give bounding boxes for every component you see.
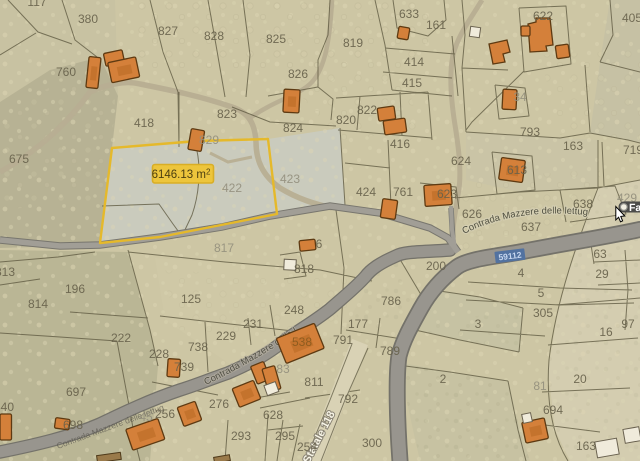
svg-text:125: 125	[181, 292, 201, 306]
svg-text:819: 819	[343, 36, 363, 50]
svg-text:16: 16	[599, 325, 613, 339]
svg-text:422: 422	[222, 181, 242, 195]
svg-text:6: 6	[316, 237, 323, 251]
svg-text:5: 5	[538, 286, 545, 300]
svg-text:789: 789	[380, 344, 400, 358]
svg-text:820: 820	[336, 113, 356, 127]
svg-text:228: 228	[149, 347, 169, 361]
svg-text:818: 818	[294, 262, 314, 276]
svg-text:825: 825	[266, 32, 286, 46]
svg-text:814: 814	[28, 297, 48, 311]
svg-text:697: 697	[66, 385, 86, 399]
svg-text:817: 817	[214, 241, 234, 255]
svg-text:633: 633	[399, 7, 419, 21]
svg-text:418: 418	[134, 116, 154, 130]
svg-text:29: 29	[595, 267, 609, 281]
svg-text:380: 380	[78, 12, 98, 26]
svg-text:229: 229	[216, 329, 236, 343]
svg-text:163: 163	[576, 439, 596, 453]
svg-text:231: 231	[243, 317, 263, 331]
svg-text:623: 623	[437, 187, 457, 201]
svg-text:637: 637	[521, 220, 541, 234]
svg-text:81: 81	[533, 379, 547, 393]
svg-text:248: 248	[284, 303, 304, 317]
svg-text:538: 538	[292, 335, 312, 349]
svg-text:811: 811	[304, 375, 323, 389]
svg-text:840: 840	[0, 400, 14, 414]
svg-text:638: 638	[573, 197, 593, 211]
svg-text:626: 626	[462, 207, 482, 221]
svg-text:786: 786	[381, 294, 401, 308]
svg-text:200: 200	[426, 259, 446, 273]
svg-text:161: 161	[426, 18, 446, 32]
svg-text:97: 97	[621, 317, 635, 331]
svg-text:295: 295	[275, 429, 295, 443]
svg-text:3: 3	[475, 317, 482, 331]
svg-text:761: 761	[393, 185, 413, 199]
svg-text:826: 826	[288, 67, 308, 81]
svg-text:791: 791	[333, 333, 353, 347]
svg-text:177: 177	[348, 317, 368, 331]
svg-text:827: 827	[158, 24, 178, 38]
svg-text:276: 276	[209, 397, 229, 411]
svg-text:423: 423	[280, 172, 300, 186]
svg-text:416: 416	[390, 137, 410, 151]
svg-text:2: 2	[440, 372, 447, 386]
svg-text:293: 293	[231, 429, 251, 443]
svg-text:828: 828	[204, 29, 224, 43]
svg-text:45: 45	[139, 410, 153, 424]
svg-text:254: 254	[297, 440, 317, 454]
svg-text:675: 675	[9, 152, 29, 166]
svg-text:163: 163	[563, 139, 583, 153]
svg-text:829: 829	[199, 133, 219, 147]
svg-text:622: 622	[533, 9, 553, 23]
svg-text:300: 300	[362, 436, 382, 450]
svg-text:34: 34	[513, 90, 527, 104]
svg-text:424: 424	[356, 185, 376, 199]
svg-text:4: 4	[518, 266, 525, 280]
svg-text:117: 117	[27, 0, 46, 9]
svg-text:824: 824	[283, 121, 303, 135]
svg-text:792: 792	[338, 392, 358, 406]
svg-text:20: 20	[573, 372, 587, 386]
svg-text:613: 613	[507, 163, 527, 177]
svg-text:83: 83	[276, 362, 290, 376]
svg-text:196: 196	[65, 282, 85, 296]
svg-text:405: 405	[622, 11, 640, 25]
svg-text:624: 624	[451, 154, 471, 168]
svg-text:415: 415	[402, 76, 422, 90]
svg-text:760: 760	[56, 65, 76, 79]
svg-text:813: 813	[0, 265, 15, 279]
svg-text:823: 823	[217, 107, 237, 121]
svg-text:694: 694	[543, 403, 563, 417]
svg-text:63: 63	[593, 247, 607, 261]
svg-text:Fa: Fa	[629, 202, 640, 214]
svg-text:698: 698	[63, 418, 83, 432]
svg-text:738: 738	[188, 340, 208, 354]
svg-text:414: 414	[404, 55, 424, 69]
svg-text:6146.13 m2: 6146.13 m2	[152, 168, 211, 182]
svg-text:256: 256	[155, 407, 175, 421]
svg-text:719: 719	[623, 143, 640, 157]
svg-text:822: 822	[357, 103, 377, 117]
svg-text:793: 793	[520, 125, 540, 139]
svg-text:739: 739	[174, 360, 194, 374]
svg-text:222: 222	[111, 331, 131, 345]
svg-text:628: 628	[263, 408, 283, 422]
svg-text:305: 305	[533, 306, 553, 320]
